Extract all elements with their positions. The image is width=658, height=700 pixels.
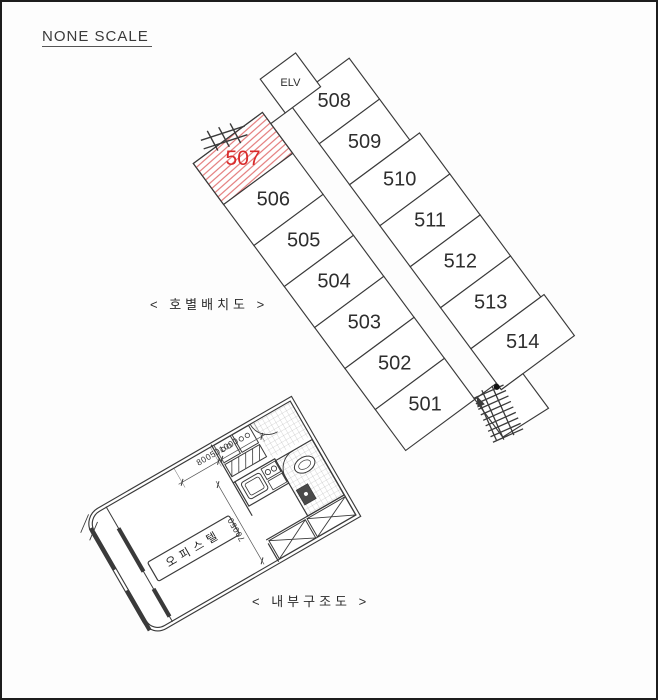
unit-number: 505 [287,229,320,251]
unit-number: 501 [408,393,441,415]
unit-grid: 5075065055045035025015085095105115125135… [177,20,600,492]
unit-number: 502 [378,352,411,374]
interior-plan-caption: < 내부구조도 > [252,591,370,610]
elevator-label: ELV [280,77,301,89]
unit-number: 510 [383,168,416,190]
unit-number: 514 [506,331,539,353]
unit-number: 511 [414,209,446,231]
unit-number: 512 [444,250,477,272]
unit-number: 504 [317,270,350,292]
unit-number: 509 [348,131,381,153]
unit-number-highlighted: 507 [226,147,261,170]
unit-number: 508 [318,90,351,112]
unit-number: 513 [474,291,507,313]
document-page: NONE SCALE 50750650550450350250150850951… [0,0,658,700]
unit-layout-caption: < 호별배치도 > [150,294,268,313]
unit-location-diagram: 5075065055045035025015085095105115125135… [177,20,600,492]
unit-number: 503 [348,311,381,333]
unit-number: 506 [257,188,290,210]
